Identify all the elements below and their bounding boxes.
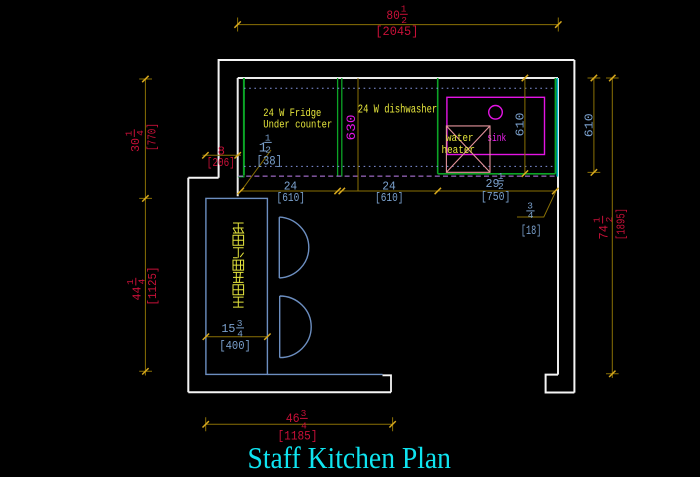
svg-text:[1895]: [1895] xyxy=(615,208,629,240)
svg-text:water: water xyxy=(446,133,474,145)
svg-text:24 W Fridge: 24 W Fridge xyxy=(263,108,321,120)
svg-text:4: 4 xyxy=(135,130,146,136)
svg-text:heater: heater xyxy=(442,145,476,157)
svg-text:[38]: [38] xyxy=(257,155,283,169)
svg-text:24 W dishwasher: 24 W dishwasher xyxy=(358,103,437,117)
svg-text:[206]: [206] xyxy=(207,156,235,170)
svg-text:[770]: [770] xyxy=(147,123,160,151)
svg-text:[610]: [610] xyxy=(375,192,404,205)
svg-text:630: 630 xyxy=(344,115,359,141)
svg-text:74: 74 xyxy=(598,225,612,240)
svg-text:30: 30 xyxy=(129,138,143,152)
svg-text:[1125]: [1125] xyxy=(147,267,160,306)
svg-text:[750]: [750] xyxy=(481,191,511,204)
svg-text:2: 2 xyxy=(604,216,615,222)
svg-text:[610]: [610] xyxy=(277,192,306,205)
svg-text:3: 3 xyxy=(237,318,243,329)
svg-text:610: 610 xyxy=(583,113,597,137)
svg-text:4: 4 xyxy=(528,210,534,221)
svg-text:[2045]: [2045] xyxy=(375,25,418,39)
svg-text:610: 610 xyxy=(514,113,528,137)
svg-text:46: 46 xyxy=(286,411,300,426)
svg-text:80: 80 xyxy=(386,8,400,23)
svg-text:1: 1 xyxy=(125,279,136,285)
svg-text:44: 44 xyxy=(131,287,145,301)
svg-text:3: 3 xyxy=(301,408,307,419)
svg-text:15: 15 xyxy=(221,322,235,336)
svg-text:1: 1 xyxy=(123,130,134,136)
svg-text:1: 1 xyxy=(401,3,407,14)
svg-text:[400]: [400] xyxy=(219,339,251,353)
svg-text:[18]: [18] xyxy=(521,224,542,238)
svg-text:1: 1 xyxy=(265,133,271,144)
svg-text:Under counter: Under counter xyxy=(263,120,332,132)
svg-text:1: 1 xyxy=(592,217,603,223)
svg-text:Staff Kitchen Plan: Staff Kitchen Plan xyxy=(248,440,452,475)
